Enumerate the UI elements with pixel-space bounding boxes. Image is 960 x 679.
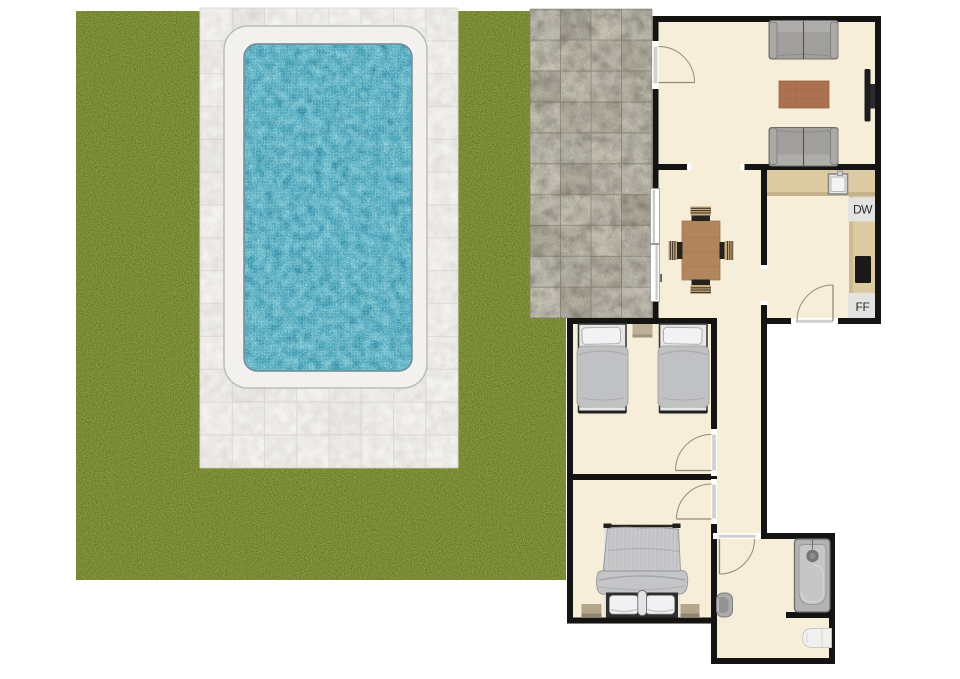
svg-text:DW: DW xyxy=(853,203,873,217)
svg-text:FF: FF xyxy=(856,300,870,314)
